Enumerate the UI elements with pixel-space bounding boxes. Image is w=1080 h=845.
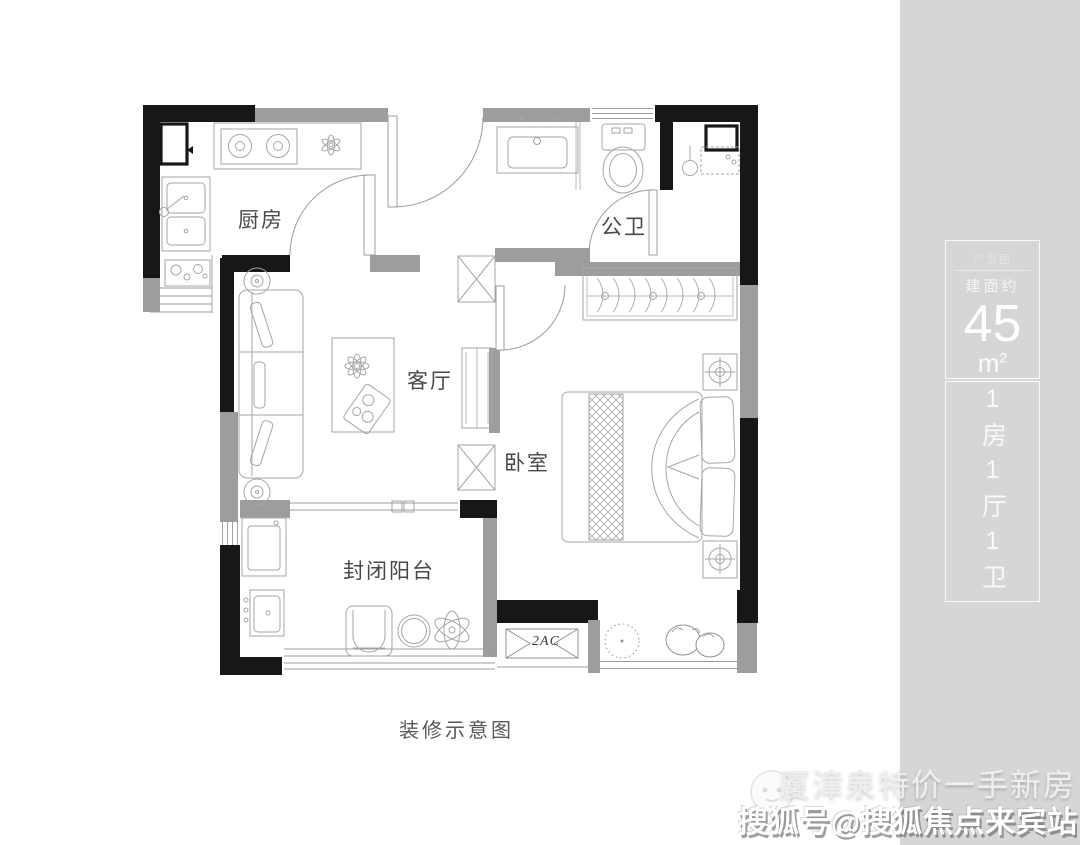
kitchen-plant-icon [321,135,342,155]
area-prefix: 建面约 [946,275,1039,296]
plan-caption: 装修示意图 [399,714,514,743]
area-unit-exponent: 2 [999,349,1007,365]
room-label-kitchen: 厨房 [238,204,284,234]
room-label-living: 客厅 [407,365,453,395]
area-value: 45 [946,298,1039,350]
balcony-furniture [242,518,472,656]
shrub-icons [666,625,724,657]
area-unit-symbol: m [978,348,1000,378]
layout-card: 1房1厅1卫 [945,381,1040,602]
layout-text: 1房1厅1卫 [975,385,1011,598]
wardrobe-hangers [597,278,715,312]
room-label-balcony: 封闭阳台 [343,555,435,585]
room-label-bathroom: 公卫 [601,211,647,241]
living-furniture [239,268,394,505]
area-card: 户型图 建面约 45 m2 [945,240,1040,379]
bathroom-fixtures [497,116,739,193]
area-card-tag: 户型图 [954,251,1031,271]
info-side-panel: 户型图 建面约 45 m2 1房1厅1卫 [900,0,1080,845]
watermark-account-text: 搜狐号@搜狐焦点来宾站 [738,797,1078,841]
area-unit: m2 [946,350,1039,376]
balcony-plant-icon [432,611,473,649]
floorplan-page: 厨房 公卫 客厅 卧室 封闭阳台 2AC 装修示意图 户型图 建面约 45 m2… [0,0,1080,845]
room-label-bedroom: 卧室 [504,447,550,477]
table-flower-icon [345,354,369,378]
ac-unit-label: 2AC [527,634,565,650]
table-tray-icon [343,383,392,435]
bedroom-furniture [562,268,737,578]
